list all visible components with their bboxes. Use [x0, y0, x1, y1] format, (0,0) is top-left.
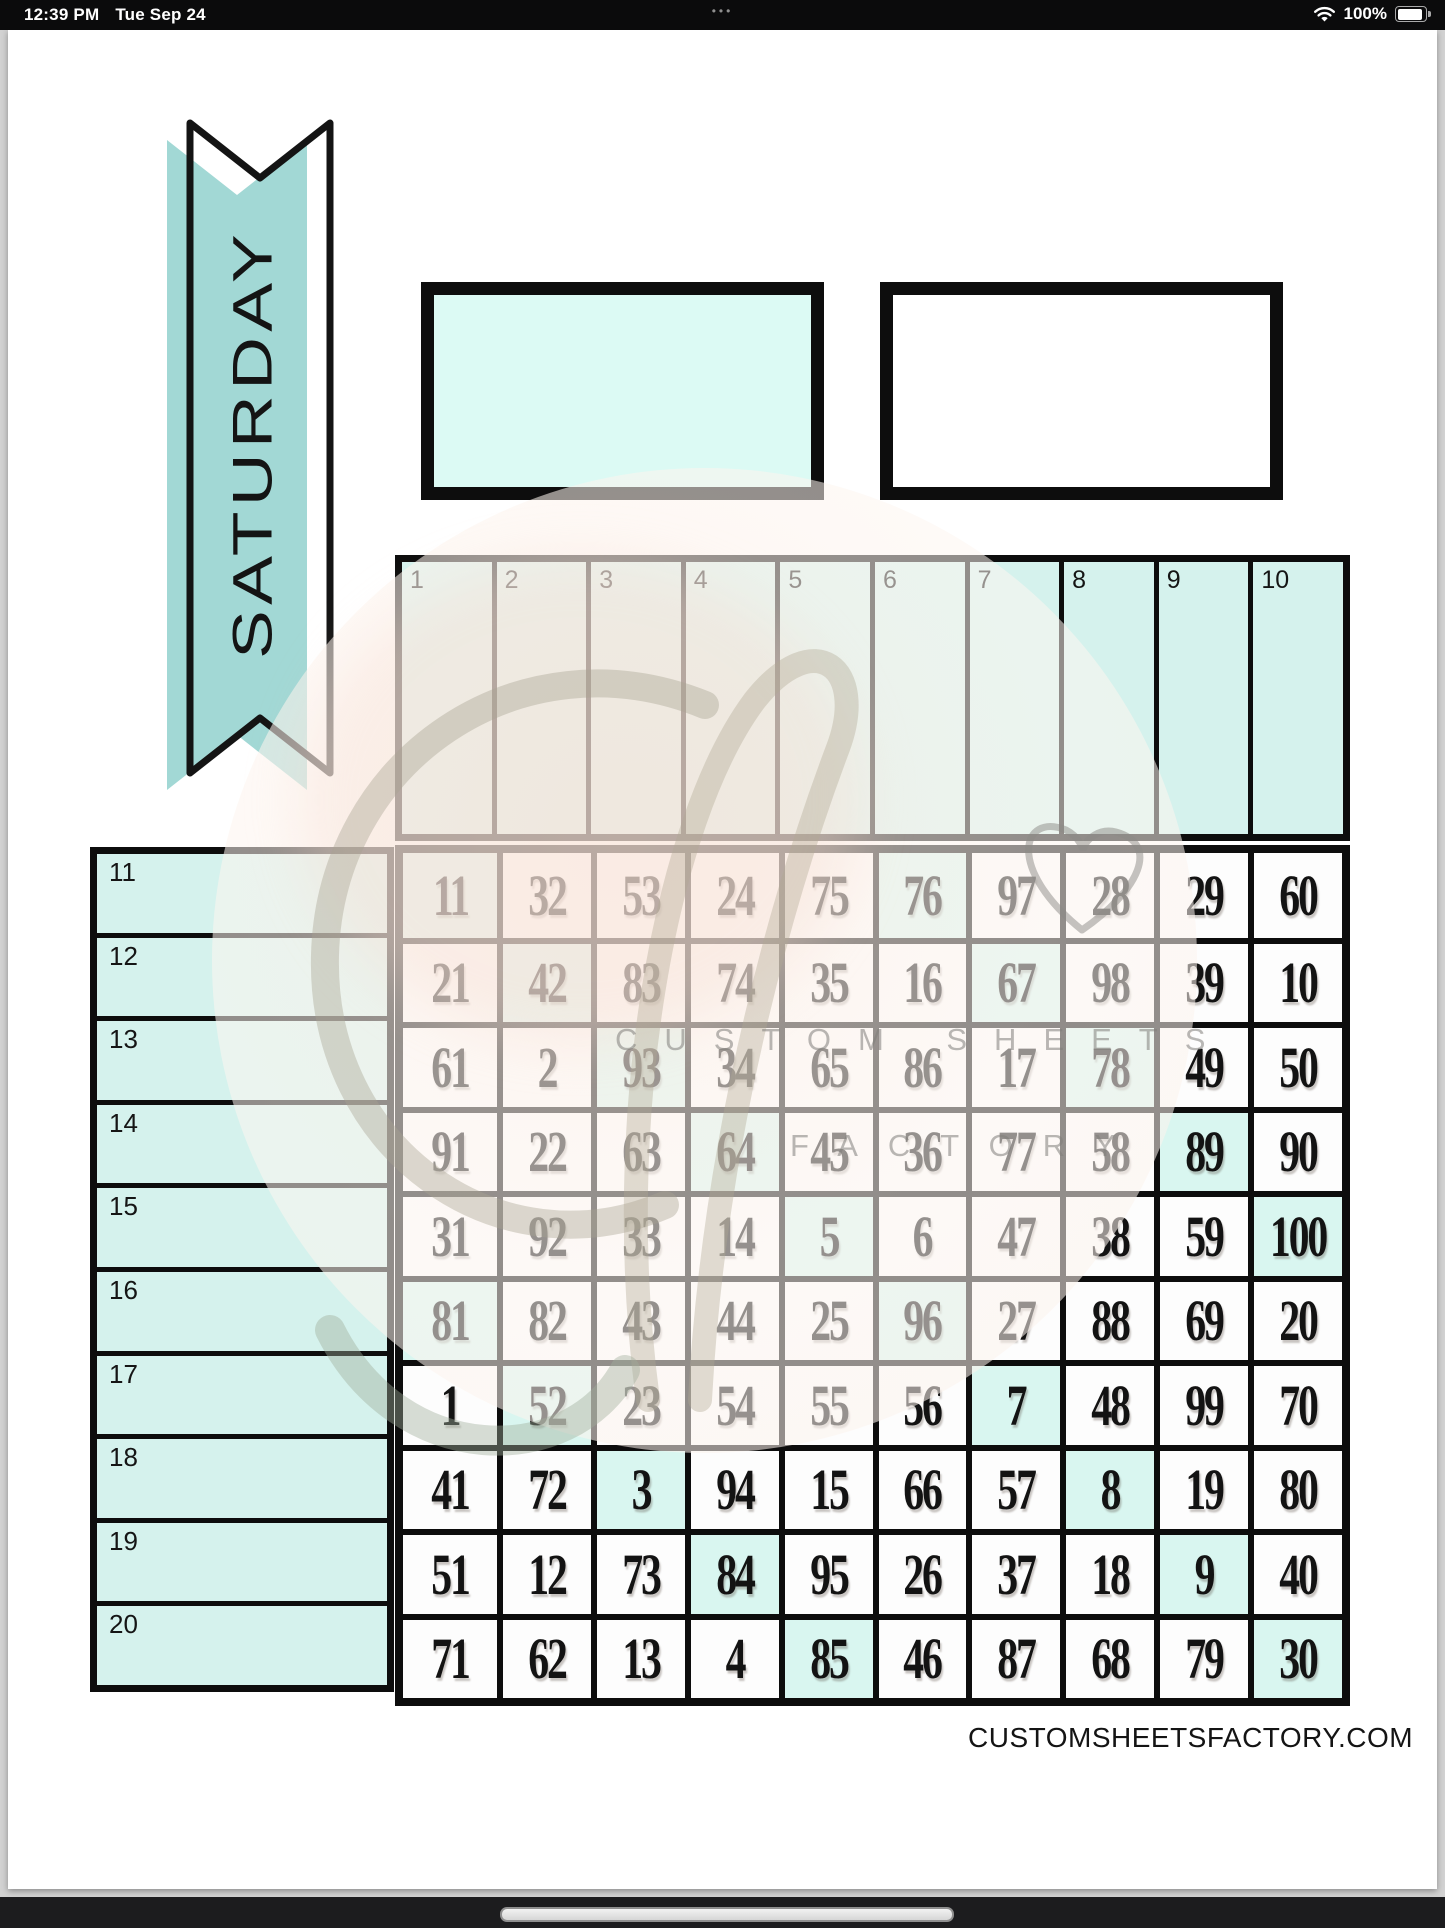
number-cell: 98: [1060, 938, 1154, 1023]
number-cell: 7: [966, 1360, 1060, 1445]
number-cell-value: 97: [998, 862, 1035, 929]
number-cell-value: 35: [810, 949, 847, 1016]
number-cell-value: 82: [528, 1287, 565, 1354]
number-cell: 40: [1248, 1529, 1342, 1614]
side-row-label: 20: [97, 1606, 387, 1640]
number-cell: 96: [873, 1276, 967, 1361]
number-cell-value: 50: [1279, 1034, 1316, 1101]
website-text: CUSTOMSHEETSFACTORY.COM: [968, 1722, 1413, 1754]
number-cell-value: 26: [904, 1541, 941, 1608]
number-cell-value: 24: [716, 862, 753, 929]
number-cell: 58: [1060, 1107, 1154, 1192]
number-cell-value: 78: [1092, 1034, 1129, 1101]
number-cell-value: 27: [998, 1287, 1035, 1354]
number-cell: 46: [873, 1614, 967, 1699]
number-cell-value: 44: [716, 1287, 753, 1354]
top-column-cell: 8: [1059, 562, 1154, 834]
number-cell-value: 59: [1185, 1203, 1222, 1270]
number-cell-value: 91: [431, 1118, 468, 1185]
number-cell-value: 9: [1195, 1541, 1214, 1608]
number-cell: 75: [779, 853, 873, 938]
side-row: 12: [97, 933, 387, 1017]
battery-icon: [1395, 6, 1427, 22]
number-cell-value: 15: [810, 1456, 847, 1523]
number-cell-value: 84: [716, 1541, 753, 1608]
side-row: 20: [97, 1601, 387, 1685]
number-cell: 16: [873, 938, 967, 1023]
number-cell: 61: [403, 1022, 497, 1107]
number-cell-value: 8: [1101, 1456, 1120, 1523]
number-cell-value: 92: [528, 1203, 565, 1270]
number-cell: 72: [497, 1445, 591, 1530]
number-cell: 38: [1060, 1191, 1154, 1276]
number-cell: 97: [966, 853, 1060, 938]
number-cell: 66: [873, 1445, 967, 1530]
number-cell-value: 14: [716, 1203, 753, 1270]
number-cell: 20: [1248, 1276, 1342, 1361]
wifi-icon: [1313, 6, 1336, 23]
number-cell-value: 3: [631, 1456, 650, 1523]
top-column-label: 6: [875, 562, 965, 595]
top-column-label: 7: [970, 562, 1060, 595]
number-cell-value: 38: [1092, 1203, 1129, 1270]
side-row-label: 14: [97, 1105, 387, 1139]
number-cell: 31: [403, 1191, 497, 1276]
number-cell-value: 94: [716, 1456, 753, 1523]
number-cell-value: 81: [431, 1287, 468, 1354]
number-cell: 76: [873, 853, 967, 938]
number-cell-value: 88: [1092, 1287, 1129, 1354]
number-cell: 64: [685, 1107, 779, 1192]
number-cell-value: 47: [998, 1203, 1035, 1270]
number-cell: 15: [779, 1445, 873, 1530]
number-cell: 86: [873, 1022, 967, 1107]
number-cell-value: 48: [1092, 1372, 1129, 1439]
number-cell: 36: [873, 1107, 967, 1192]
number-cell: 4: [685, 1614, 779, 1699]
number-cell: 42: [497, 938, 591, 1023]
top-column-label: 4: [686, 562, 776, 595]
number-cell-value: 63: [622, 1118, 659, 1185]
number-cell-value: 96: [904, 1287, 941, 1354]
number-cell-value: 45: [810, 1118, 847, 1185]
number-cell-value: 72: [528, 1456, 565, 1523]
scroll-indicator[interactable]: [500, 1907, 954, 1922]
number-cell-value: 64: [716, 1118, 753, 1185]
number-cell: 29: [1154, 853, 1248, 938]
number-cell-value: 65: [810, 1034, 847, 1101]
number-cell-value: 21: [431, 949, 468, 1016]
number-cell-value: 30: [1279, 1625, 1316, 1692]
number-cell: 12: [497, 1529, 591, 1614]
number-cell: 6: [873, 1191, 967, 1276]
number-cell: 13: [591, 1614, 685, 1699]
side-row: 16: [97, 1267, 387, 1351]
number-cell-value: 39: [1185, 949, 1222, 1016]
number-cell: 93: [591, 1022, 685, 1107]
number-cell: 74: [685, 938, 779, 1023]
number-cell-value: 71: [431, 1625, 468, 1692]
number-cell-value: 100: [1270, 1203, 1326, 1270]
number-cell: 51: [403, 1529, 497, 1614]
top-column-cell: 1: [402, 562, 492, 834]
number-cell-value: 41: [431, 1456, 468, 1523]
number-cell-value: 57: [998, 1456, 1035, 1523]
status-indicators: 100%: [1313, 4, 1427, 24]
number-cell: 3: [591, 1445, 685, 1530]
number-cell-value: 29: [1185, 862, 1222, 929]
number-cell: 18: [1060, 1529, 1154, 1614]
number-cell: 30: [1248, 1614, 1342, 1699]
number-cell: 100: [1248, 1191, 1342, 1276]
number-cell-value: 54: [716, 1372, 753, 1439]
number-cell: 55: [779, 1360, 873, 1445]
number-cell: 33: [591, 1191, 685, 1276]
battery-percent: 100%: [1344, 4, 1387, 24]
number-cell-value: 76: [904, 862, 941, 929]
number-cell: 59: [1154, 1191, 1248, 1276]
number-cell: 56: [873, 1360, 967, 1445]
number-cell: 88: [1060, 1276, 1154, 1361]
number-cell: 39: [1154, 938, 1248, 1023]
number-cell: 79: [1154, 1614, 1248, 1699]
number-cell: 28: [1060, 853, 1154, 938]
number-cell-value: 73: [622, 1541, 659, 1608]
side-row-label: 12: [97, 938, 387, 972]
number-cell-value: 66: [904, 1456, 941, 1523]
number-cell-value: 7: [1007, 1372, 1026, 1439]
number-cell-value: 34: [716, 1034, 753, 1101]
number-cell: 83: [591, 938, 685, 1023]
side-rows-grid: 11121314151617181920: [90, 847, 394, 1692]
number-cell-value: 53: [622, 862, 659, 929]
side-row-label: 19: [97, 1523, 387, 1557]
number-cell: 82: [497, 1276, 591, 1361]
number-cell-value: 99: [1185, 1372, 1222, 1439]
number-cell-value: 33: [622, 1203, 659, 1270]
number-cell: 89: [1154, 1107, 1248, 1192]
number-cell-value: 75: [810, 862, 847, 929]
number-cell: 5: [779, 1191, 873, 1276]
number-cell-value: 36: [904, 1118, 941, 1185]
number-cell-value: 31: [431, 1203, 468, 1270]
number-cell-value: 52: [528, 1372, 565, 1439]
side-row: 11: [97, 854, 387, 933]
top-column-cell: 7: [965, 562, 1060, 834]
number-cell-value: 98: [1092, 949, 1129, 1016]
number-cell: 63: [591, 1107, 685, 1192]
number-cell: 53: [591, 853, 685, 938]
number-cell: 14: [685, 1191, 779, 1276]
number-cell: 17: [966, 1022, 1060, 1107]
number-cell-value: 80: [1279, 1456, 1316, 1523]
number-cell-value: 49: [1185, 1034, 1222, 1101]
number-cell: 90: [1248, 1107, 1342, 1192]
number-cell-value: 83: [622, 949, 659, 1016]
side-row: 19: [97, 1518, 387, 1602]
number-cell-value: 10: [1279, 949, 1316, 1016]
number-cell-value: 68: [1092, 1625, 1129, 1692]
number-cell-value: 89: [1185, 1118, 1222, 1185]
number-cell-value: 17: [998, 1034, 1035, 1101]
side-row-label: 16: [97, 1272, 387, 1306]
number-cell: 52: [497, 1360, 591, 1445]
number-cell-value: 79: [1185, 1625, 1222, 1692]
number-cell: 19: [1154, 1445, 1248, 1530]
number-cell: 9: [1154, 1529, 1248, 1614]
number-cell: 91: [403, 1107, 497, 1192]
top-column-cell: 5: [775, 562, 870, 834]
number-cell-value: 18: [1092, 1541, 1129, 1608]
number-cell-value: 51: [431, 1541, 468, 1608]
number-cell-value: 42: [528, 949, 565, 1016]
number-cell: 99: [1154, 1360, 1248, 1445]
number-cell: 95: [779, 1529, 873, 1614]
side-row-label: 17: [97, 1356, 387, 1390]
number-cell: 48: [1060, 1360, 1154, 1445]
number-cell: 26: [873, 1529, 967, 1614]
saturday-banner: SATURDAY: [166, 114, 342, 814]
number-cell-value: 74: [716, 949, 753, 1016]
number-cell: 35: [779, 938, 873, 1023]
number-cell: 34: [685, 1022, 779, 1107]
number-cell-value: 6: [913, 1203, 932, 1270]
top-column-label: 8: [1064, 562, 1154, 595]
number-cell: 25: [779, 1276, 873, 1361]
number-cell: 10: [1248, 938, 1342, 1023]
number-cell: 71: [403, 1614, 497, 1699]
top-column-cell: 9: [1154, 562, 1249, 834]
top-column-cell: 4: [681, 562, 776, 834]
number-cell-value: 23: [622, 1372, 659, 1439]
number-cell: 50: [1248, 1022, 1342, 1107]
side-row-label: 13: [97, 1021, 387, 1055]
number-cell: 49: [1154, 1022, 1248, 1107]
number-cell-value: 56: [904, 1372, 941, 1439]
number-cell-value: 67: [998, 949, 1035, 1016]
number-cell-value: 13: [622, 1625, 659, 1692]
number-cell-value: 58: [1092, 1118, 1129, 1185]
number-cell: 41: [403, 1445, 497, 1530]
number-cell-value: 77: [998, 1118, 1035, 1185]
number-cell-value: 40: [1279, 1541, 1316, 1608]
number-cell: 11: [403, 853, 497, 938]
number-cell-value: 4: [725, 1625, 744, 1692]
number-cell-value: 93: [622, 1034, 659, 1101]
number-cell-value: 46: [904, 1625, 941, 1692]
number-cell-value: 95: [810, 1541, 847, 1608]
side-row-label: 11: [97, 854, 387, 888]
number-cell: 68: [1060, 1614, 1154, 1699]
side-row: 17: [97, 1351, 387, 1435]
number-grid: 1132532475769728296021428374351667983910…: [395, 845, 1350, 1706]
number-cell-value: 22: [528, 1118, 565, 1185]
number-cell: 60: [1248, 853, 1342, 938]
number-cell: 85: [779, 1614, 873, 1699]
side-row: 14: [97, 1100, 387, 1184]
number-cell: 81: [403, 1276, 497, 1361]
number-cell-value: 86: [904, 1034, 941, 1101]
number-cell-value: 32: [528, 862, 565, 929]
number-cell-value: 11: [432, 862, 467, 929]
number-cell: 92: [497, 1191, 591, 1276]
number-cell: 32: [497, 853, 591, 938]
side-row-label: 15: [97, 1188, 387, 1222]
number-cell: 23: [591, 1360, 685, 1445]
status-bar: 12:39 PMTue Sep 24 ••• 100%: [0, 0, 1445, 30]
top-column-label: 1: [402, 562, 492, 595]
top-column-cell: 10: [1248, 562, 1343, 834]
number-cell: 69: [1154, 1276, 1248, 1361]
number-cell: 47: [966, 1191, 1060, 1276]
number-cell: 65: [779, 1022, 873, 1107]
notes-box-white: [880, 282, 1283, 500]
number-cell: 43: [591, 1276, 685, 1361]
side-row-label: 18: [97, 1439, 387, 1473]
top-column-label: 10: [1253, 562, 1343, 595]
top-column-cell: 3: [586, 562, 681, 834]
number-cell: 22: [497, 1107, 591, 1192]
number-cell: 73: [591, 1529, 685, 1614]
number-cell-value: 5: [819, 1203, 838, 1270]
number-cell: 84: [685, 1529, 779, 1614]
number-cell-value: 87: [998, 1625, 1035, 1692]
number-cell-value: 70: [1279, 1372, 1316, 1439]
number-cell-value: 12: [528, 1541, 565, 1608]
number-cell: 67: [966, 938, 1060, 1023]
number-cell-value: 90: [1279, 1118, 1316, 1185]
number-cell-value: 2: [537, 1034, 556, 1101]
number-cell: 2: [497, 1022, 591, 1107]
number-cell: 87: [966, 1614, 1060, 1699]
number-cell: 70: [1248, 1360, 1342, 1445]
side-row: 18: [97, 1434, 387, 1518]
number-cell: 45: [779, 1107, 873, 1192]
number-cell: 62: [497, 1614, 591, 1699]
number-cell: 57: [966, 1445, 1060, 1530]
ipad-screen: 12:39 PMTue Sep 24 ••• 100% SATURDAY 123…: [0, 0, 1445, 1928]
top-column-cell: 2: [492, 562, 587, 834]
number-cell-value: 28: [1092, 862, 1129, 929]
number-cell-value: 62: [528, 1625, 565, 1692]
multitask-dots-icon[interactable]: •••: [0, 4, 1445, 18]
number-cell: 8: [1060, 1445, 1154, 1530]
top-columns-grid: 12345678910: [395, 555, 1350, 841]
number-cell: 37: [966, 1529, 1060, 1614]
number-cell-value: 69: [1185, 1287, 1222, 1354]
number-cell: 78: [1060, 1022, 1154, 1107]
top-column-cell: 6: [870, 562, 965, 834]
bottom-bar: [0, 1897, 1445, 1928]
top-column-label: 2: [497, 562, 587, 595]
side-row: 13: [97, 1016, 387, 1100]
number-cell: 1: [403, 1360, 497, 1445]
number-cell-value: 16: [904, 949, 941, 1016]
number-cell-value: 20: [1279, 1287, 1316, 1354]
number-cell-value: 60: [1279, 862, 1316, 929]
number-cell-value: 85: [810, 1625, 847, 1692]
number-cell: 54: [685, 1360, 779, 1445]
number-cell: 21: [403, 938, 497, 1023]
number-cell: 44: [685, 1276, 779, 1361]
top-column-label: 5: [780, 562, 870, 595]
number-cell-value: 19: [1185, 1456, 1222, 1523]
top-column-label: 9: [1159, 562, 1249, 595]
number-cell: 80: [1248, 1445, 1342, 1530]
number-cell: 27: [966, 1276, 1060, 1361]
number-cell-value: 1: [441, 1372, 460, 1439]
number-cell: 94: [685, 1445, 779, 1530]
number-cell-value: 37: [998, 1541, 1035, 1608]
number-cell-value: 43: [622, 1287, 659, 1354]
banner-label: SATURDAY: [221, 229, 284, 659]
number-cell-value: 61: [431, 1034, 468, 1101]
notes-box-mint: [421, 282, 824, 500]
number-cell: 24: [685, 853, 779, 938]
number-cell: 77: [966, 1107, 1060, 1192]
side-row: 15: [97, 1183, 387, 1267]
number-cell-value: 25: [810, 1287, 847, 1354]
number-cell-value: 55: [810, 1372, 847, 1439]
top-column-label: 3: [591, 562, 681, 595]
